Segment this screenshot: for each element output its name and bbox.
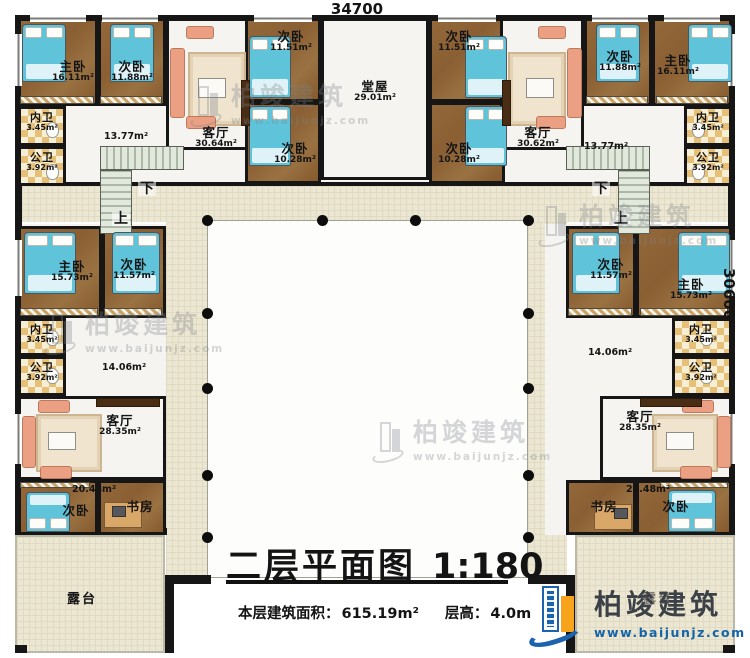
window	[30, 15, 86, 22]
sofa	[680, 466, 712, 479]
terrace-left-label: 露台	[52, 588, 112, 607]
hall-area-top-left: 13.77m²	[104, 131, 148, 142]
column-dot	[202, 215, 213, 226]
room-label-living-mr: 客厅28.35m²	[604, 410, 676, 434]
room-label-bed-bl: 次卧	[54, 504, 98, 518]
wall-step-left-v	[165, 584, 174, 653]
closet-hatch	[568, 308, 632, 316]
column-dot	[202, 383, 213, 394]
room-label-living-tl: 客厅30.64m²	[188, 126, 244, 150]
stairs-up-label: 上	[612, 212, 630, 226]
floorplan-canvas: 34700 30600	[0, 0, 750, 658]
courtyard	[207, 220, 528, 578]
brand-logo: 柏竣建筑 www.baijunjz.com	[528, 584, 746, 646]
closet-hatch	[20, 96, 94, 104]
room-label-master-tl: 主卧16.11m²	[50, 60, 96, 84]
room-label-bed-t5: 次卧11.51m²	[432, 30, 486, 54]
sofa	[538, 26, 566, 39]
window	[15, 414, 22, 464]
coffee-table	[198, 78, 226, 98]
sofa	[40, 466, 72, 479]
room-label-bath-inner-mr: 内卫3.45m²	[676, 324, 726, 345]
column-dot	[523, 308, 534, 319]
sofa	[717, 416, 731, 468]
window	[15, 240, 22, 296]
corner-tab	[723, 645, 735, 653]
floor-height-label: 层高：	[445, 606, 489, 622]
room-label-master-ml: 主卧15.73m²	[46, 260, 98, 284]
stairs-down-label: 下	[592, 182, 610, 196]
suite-area-bottom-left: 20.48m²	[72, 484, 116, 495]
suite-area-bottom-right: 20.48m²	[626, 484, 670, 495]
sofa	[38, 400, 70, 413]
closet-hatch	[20, 308, 98, 316]
tv-cabinet	[241, 80, 250, 126]
coffee-table	[526, 78, 554, 98]
window	[254, 15, 312, 22]
room-label-bath-inner-tr: 内卫3.45m²	[686, 112, 730, 133]
hall-area-mid-right: 14.06m²	[588, 347, 632, 358]
room-label-bath-inner-tl: 内卫3.45m²	[20, 112, 64, 133]
room-label-bed2-tr: 次卧11.88m²	[588, 50, 652, 74]
room-label-bed-ml: 次卧11.57m²	[102, 258, 166, 282]
title-underline	[226, 580, 508, 584]
column-dot	[202, 470, 213, 481]
room-label-bath-public-mr: 公卫3.92m²	[676, 362, 726, 383]
room-label-bed2-tl: 次卧11.88m²	[100, 60, 164, 84]
sofa	[186, 26, 214, 39]
column-dot	[202, 532, 213, 543]
corner-tab	[15, 645, 27, 653]
room-label-study-br: 书房	[578, 500, 630, 514]
room-label-bath-public-tr: 公卫3.92m²	[686, 152, 730, 173]
room-label-bed-t4: 次卧10.28m²	[268, 142, 322, 166]
room-label-master-tr: 主卧16.11m²	[652, 54, 704, 78]
stairs-up-label: 上	[112, 212, 130, 226]
closet-hatch	[660, 482, 728, 488]
plan-subtitle: 本层建筑面积：615.19m²层高：4.0m	[238, 602, 538, 623]
room-label-bed-t6: 次卧10.28m²	[432, 142, 486, 166]
room-label-bath-inner-ml: 内卫3.45m²	[20, 324, 64, 345]
hall-area-mid-left: 14.06m²	[102, 362, 146, 373]
dimension-right: 30600	[720, 268, 738, 320]
room-label-living-ml: 客厅28.35m²	[84, 414, 156, 438]
brand-url: www.baijunjz.com	[594, 625, 746, 640]
column-dot	[523, 383, 534, 394]
brand-building-icon	[528, 584, 586, 646]
tv-cabinet	[640, 398, 702, 407]
closet-hatch	[586, 96, 648, 104]
room-label-master-mr: 主卧15.73m²	[662, 278, 720, 302]
room-label-bed-t3: 次卧11.51m²	[264, 30, 318, 54]
room-label-bed-br: 次卧	[648, 500, 704, 514]
closet-hatch	[640, 308, 728, 316]
room-label-bath-public-ml: 公卫3.92m²	[20, 362, 64, 383]
hall-area-top-right: 13.77m²	[584, 141, 628, 152]
sofa	[170, 48, 185, 118]
column-dot	[523, 215, 534, 226]
sofa	[567, 48, 582, 118]
wall-step-left-h	[165, 575, 211, 584]
window	[15, 34, 22, 86]
floor-area-value: 615.19m²	[342, 606, 419, 622]
floor-area-label: 本层建筑面积：	[238, 606, 340, 622]
room-label-living-tr: 客厅30.62m²	[510, 126, 566, 150]
stairs-down-label: 下	[138, 182, 156, 196]
column-dot	[202, 308, 213, 319]
stairs-left-landing	[100, 146, 184, 170]
coffee-table	[666, 432, 694, 450]
closet-hatch	[656, 96, 728, 104]
room-label-tangwu: 堂屋29.01m²	[341, 80, 409, 104]
sofa	[22, 416, 36, 468]
tv-cabinet	[502, 80, 511, 126]
tv-cabinet	[96, 398, 160, 407]
room-label-bed-mr: 次卧11.57m²	[580, 258, 642, 282]
window	[592, 15, 648, 22]
brand-name: 柏竣建筑	[594, 588, 722, 621]
column-dot	[410, 215, 421, 226]
column-dot	[317, 215, 328, 226]
dimension-top: 34700	[312, 0, 402, 18]
room-label-bath-public-tl: 公卫3.92m²	[20, 152, 64, 173]
room-label-study-bl: 书房	[114, 500, 166, 514]
floor-height-value: 4.0m	[490, 606, 531, 622]
coffee-table	[48, 432, 76, 450]
window	[102, 15, 158, 22]
closet-hatch	[100, 96, 162, 104]
closet-hatch	[104, 308, 162, 316]
window	[664, 15, 720, 22]
veranda-left	[166, 222, 207, 578]
window	[438, 15, 496, 22]
column-dot	[523, 470, 534, 481]
